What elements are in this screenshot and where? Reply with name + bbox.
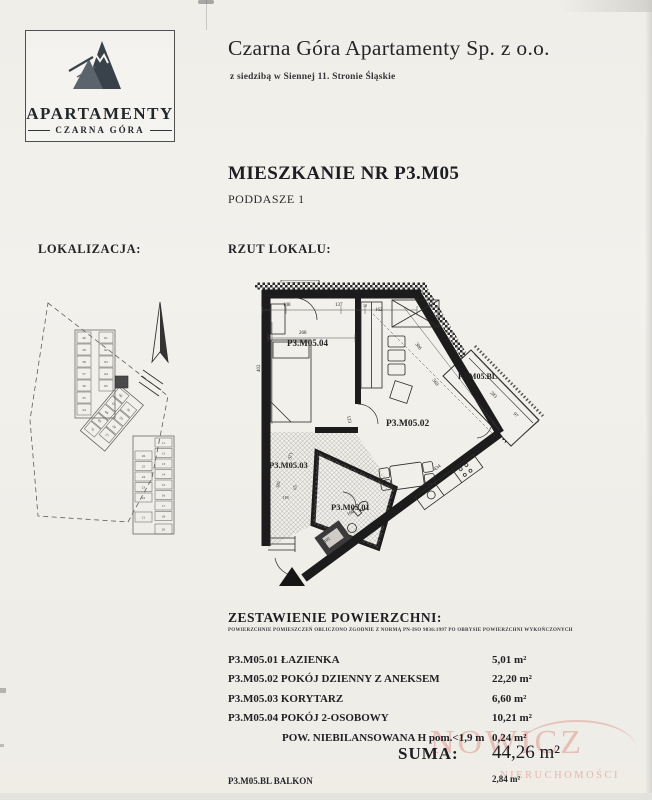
room-label: P3.M05.01 <box>331 502 370 512</box>
dimension-label: H=60 cm n.p.p. <box>264 294 287 298</box>
site-unit-number: 12 <box>162 451 166 455</box>
room-label: P3.M05.04 <box>287 338 328 348</box>
site-unit-number: 11 <box>162 441 166 445</box>
area-row-value: 5,01 m² <box>492 654 526 666</box>
site-unit-number: 34 <box>82 408 86 412</box>
balcony-row-value: 2,84 m² <box>492 774 520 784</box>
site-unit-number: 63 <box>104 360 108 364</box>
dimension-label: 268 <box>299 331 307 336</box>
area-row-value: 6,60 m² <box>492 693 526 705</box>
site-unit-number: 68 <box>104 410 109 415</box>
location-section-label: LOKALIZACJA: <box>38 242 141 257</box>
area-row: P3.M05.02 POKÓJ DZIENNY Z ANEKSEM22,20 m… <box>228 673 578 692</box>
site-unit-number: 27 <box>104 433 109 438</box>
scan-mark <box>198 0 214 4</box>
areas-section-subtitle: POWIERZCHNIE POMIESZCZEŃ OBLICZONO ZGODN… <box>228 628 588 633</box>
area-row: P3.M05.04 POKÓJ 2-OSOBOWY10,21 m² <box>228 712 578 731</box>
site-unit-number: 40 <box>82 336 86 340</box>
site-unit-number: 18 <box>162 514 166 518</box>
area-row-value: 22,20 m² <box>492 673 532 685</box>
plan-section-label: RZUT LOKALU: <box>228 242 331 257</box>
dimension-label: 123 <box>345 415 352 424</box>
company-name: Czarna Góra Apartamenty Sp. z o.o. <box>228 36 550 61</box>
site-unit-number: 61 <box>104 336 108 340</box>
apartment-title: MIESZKANIE NR P3.M05 <box>228 163 459 185</box>
area-row-label: P3.M05.02 POKÓJ DZIENNY Z ANEKSEM <box>228 673 440 685</box>
dimension-label: 108 <box>283 303 291 308</box>
site-unit-number: 69 <box>97 418 102 423</box>
site-unit-number: 21 <box>142 515 146 519</box>
area-row-label: POW. NIEBILANSOWANA H pom.<1,9 m <box>282 732 484 744</box>
site-unit-number: 20 <box>162 527 166 531</box>
dimension-label: 23 <box>261 303 267 308</box>
site-unit-number: 38 <box>82 360 86 364</box>
logo-subtitle: CZARNA GÓRA <box>26 125 174 135</box>
highlighted-unit <box>115 376 128 388</box>
site-unit-number: 29 <box>119 416 124 421</box>
company-address: z siedzibą w Siennej 11. Stronie Śląskie <box>230 72 395 82</box>
site-unit-number: 36 <box>82 384 86 388</box>
site-unit-number: 24 <box>142 475 146 479</box>
total-label: SUMA: <box>398 744 459 764</box>
mountain-logo-icon <box>65 37 135 97</box>
site-unit-number: 65 <box>104 384 108 388</box>
dimension-label: 137 <box>335 303 343 308</box>
site-unit-number: 39 <box>82 348 86 352</box>
balcony-row-label: P3.M05.BL BALKON <box>228 776 313 786</box>
floor-subtitle: PODDASZE 1 <box>228 192 305 207</box>
room-label: P3.M05.03 <box>269 460 308 470</box>
area-row: P3.M05.01 ŁAZIENKA5,01 m² <box>228 654 578 673</box>
scan-edge-right <box>645 0 652 800</box>
site-unit-number: 23 <box>142 485 146 489</box>
north-arrow-icon <box>139 302 168 396</box>
site-unit-number: 35 <box>82 396 86 400</box>
areas-table: P3.M05.01 ŁAZIENKA5,01 m²P3.M05.02 POKÓJ… <box>228 654 578 751</box>
area-row-label: P3.M05.04 POKÓJ 2-OSOBOWY <box>228 712 389 724</box>
dimension-label: 118 <box>282 495 289 500</box>
scan-edge-bottom <box>0 793 652 800</box>
areas-section-title: ZESTAWIENIE POWIERZCHNI: <box>228 610 442 626</box>
site-unit-number: 13 <box>162 462 166 466</box>
site-unit-number: 66 <box>118 393 123 398</box>
site-unit-number: 16 <box>162 493 166 497</box>
scan-mark <box>0 688 6 693</box>
area-row-label: P3.M05.01 ŁAZIENKA <box>228 654 340 666</box>
room-label: P3.M05.02 <box>386 419 430 429</box>
site-unit-number: 62 <box>104 348 108 352</box>
site-unit-number: 25 <box>142 464 146 468</box>
dimension-label: 162 <box>375 308 383 313</box>
scan-mark <box>0 744 4 747</box>
logo-wordmark: APARTAMENTY <box>26 104 174 124</box>
scan-crease <box>206 0 207 30</box>
site-unit-number: 37 <box>82 372 86 376</box>
dimension-label: 402 <box>257 364 262 372</box>
site-unit-number: 28 <box>112 424 117 429</box>
company-logo-box: APARTAMENTY CZARNA GÓRA <box>25 30 175 142</box>
site-unit-number: 17 <box>162 504 166 508</box>
site-unit-number: 67 <box>111 402 116 407</box>
site-unit-number: 22 <box>142 496 146 500</box>
area-row-value: 10,21 m² <box>492 712 532 724</box>
area-row-label: P3.M05.03 KORYTARZ <box>228 693 343 705</box>
room-label: P3.M05.BL <box>458 372 497 381</box>
site-unit-number: 26 <box>142 454 146 458</box>
site-location-plan: 666768697030292827 403938373635346162636… <box>25 288 240 538</box>
site-unit-number: 70 <box>90 427 95 432</box>
site-unit-number: 14 <box>162 472 166 476</box>
scan-smudge <box>560 0 652 12</box>
entrance-arrow-icon <box>279 567 305 586</box>
dimension-label: 569 <box>430 378 439 387</box>
site-unit-number: 30 <box>126 407 131 412</box>
interior-walls <box>315 298 358 430</box>
site-unit-number: 15 <box>162 483 166 487</box>
site-unit-number: 64 <box>104 372 108 376</box>
apartment-floor-plan: 2310813710162268402306569123283973713826… <box>255 280 547 605</box>
scanned-document-page: APARTAMENTY CZARNA GÓRA Czarna Góra Apar… <box>0 0 652 800</box>
area-row: P3.M05.03 KORYTARZ6,60 m² <box>228 693 578 712</box>
total-value: 44,26 m² <box>492 742 560 764</box>
dimension-label: 306 <box>413 342 422 351</box>
dimension-label: 10 <box>363 303 367 308</box>
building-lower-wing <box>133 436 174 534</box>
